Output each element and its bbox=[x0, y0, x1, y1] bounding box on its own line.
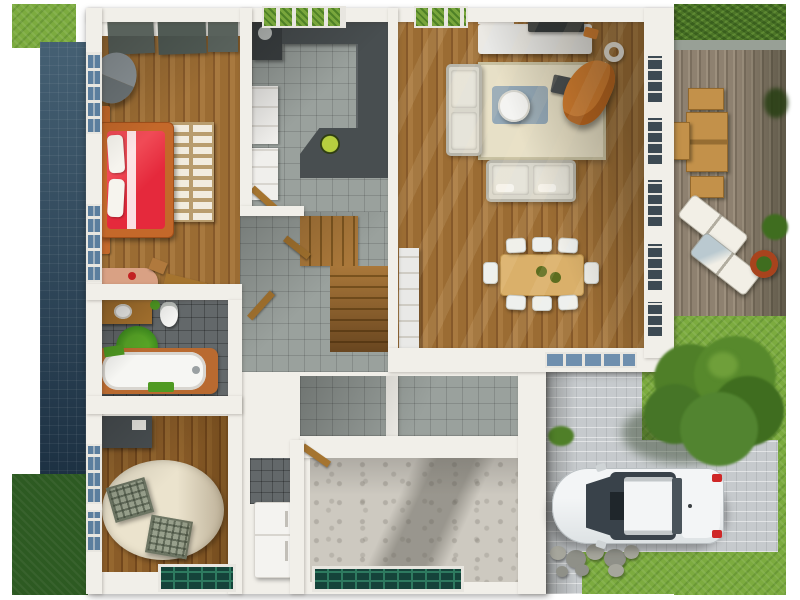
deck-dining-table bbox=[686, 112, 728, 172]
window-pane bbox=[648, 244, 662, 290]
pillow bbox=[107, 134, 126, 173]
stone bbox=[556, 566, 568, 577]
wall-top bbox=[86, 8, 674, 22]
faucet bbox=[192, 366, 200, 374]
basement-window bbox=[312, 566, 464, 592]
bush bbox=[548, 426, 574, 446]
green-bowl bbox=[550, 272, 561, 283]
garden-window bbox=[414, 6, 468, 28]
tree bbox=[628, 336, 786, 486]
dining-chair bbox=[532, 237, 552, 252]
pillow bbox=[107, 179, 125, 218]
deck-chair bbox=[688, 88, 724, 110]
tree-canopy bbox=[680, 392, 758, 466]
stairs-lower-flight bbox=[330, 266, 388, 352]
bush bbox=[762, 214, 788, 240]
car-antenna bbox=[688, 504, 692, 508]
pillow bbox=[496, 184, 514, 192]
plaid-chair bbox=[145, 515, 193, 560]
car-windshield bbox=[586, 476, 612, 536]
double-bed bbox=[98, 122, 174, 238]
dining-chair bbox=[558, 294, 579, 310]
deck-chair bbox=[672, 122, 690, 160]
fridge bbox=[254, 502, 292, 578]
dining-chair bbox=[532, 296, 552, 311]
sideboard bbox=[399, 248, 419, 352]
green-bowl bbox=[320, 134, 340, 154]
wall bbox=[386, 376, 398, 436]
dining-chair bbox=[506, 237, 527, 253]
grass-patch-bottom-left bbox=[12, 474, 88, 595]
green-bowl bbox=[536, 266, 547, 277]
car bbox=[552, 468, 724, 544]
stone bbox=[575, 564, 589, 576]
kitchen-cabinets bbox=[252, 86, 278, 144]
dining-chair bbox=[506, 294, 527, 310]
desk-flower bbox=[128, 272, 136, 280]
wall-bathroom-bottom bbox=[86, 396, 242, 414]
terracotta-planter bbox=[750, 250, 778, 278]
fridge-alcove-tile bbox=[250, 458, 294, 504]
hedge bbox=[674, 4, 786, 42]
loveseat bbox=[486, 160, 576, 202]
car-taillight bbox=[712, 474, 722, 482]
wall-kitchen-bottom bbox=[240, 206, 304, 216]
wall-corridor bbox=[290, 440, 304, 594]
hedge-coping bbox=[674, 40, 786, 50]
wall-hall-left bbox=[228, 300, 242, 594]
car-sunroof bbox=[610, 492, 624, 520]
car-rear-glass bbox=[672, 478, 682, 534]
garden-window bbox=[262, 6, 346, 28]
coffee-table bbox=[498, 90, 530, 122]
dresser-slats bbox=[193, 124, 212, 220]
bath-mat-green bbox=[148, 382, 174, 392]
sink bbox=[114, 304, 132, 319]
stone bbox=[608, 564, 624, 577]
cooktop-knob bbox=[258, 26, 272, 40]
utility-floor bbox=[300, 376, 386, 436]
stone bbox=[550, 546, 566, 560]
wall-bedroom-bottom bbox=[86, 284, 242, 300]
office-window bbox=[86, 510, 102, 552]
wall-garage-right bbox=[518, 372, 546, 594]
bed-sheet-stripe bbox=[127, 131, 136, 229]
office-window bbox=[86, 444, 102, 504]
garage-floor bbox=[310, 458, 518, 582]
car-taillight bbox=[712, 530, 722, 538]
fridge-seam bbox=[255, 534, 291, 536]
dining-chair bbox=[483, 262, 498, 284]
window-pane bbox=[648, 302, 662, 336]
wall-bedroom-kitchen bbox=[240, 8, 252, 208]
car-roof bbox=[624, 477, 674, 535]
dining-window bbox=[545, 352, 637, 368]
wall bbox=[300, 436, 528, 458]
fridge-handle bbox=[285, 541, 288, 561]
pillow bbox=[538, 184, 556, 192]
sofa-cushion bbox=[451, 70, 477, 108]
dining-chair bbox=[558, 237, 579, 253]
bedroom-window bbox=[86, 204, 102, 282]
wall-kitchen-living bbox=[388, 8, 398, 355]
fridge-handle bbox=[285, 511, 288, 527]
slatted-dresser bbox=[168, 122, 214, 222]
tree-highlight bbox=[708, 352, 738, 378]
plant-green bbox=[150, 300, 160, 310]
desk-paper bbox=[132, 420, 146, 430]
floor-plan-render bbox=[0, 0, 800, 600]
sofa-two-seat bbox=[446, 64, 482, 156]
bush bbox=[764, 88, 788, 118]
speaker-ring bbox=[604, 42, 624, 62]
closet-panel bbox=[208, 18, 238, 52]
blue-side-strip bbox=[40, 42, 88, 480]
toilet bbox=[160, 302, 178, 327]
window-pane bbox=[648, 180, 662, 226]
stairs-upper-flight bbox=[300, 216, 358, 266]
utility-floor bbox=[398, 376, 528, 436]
basement-window bbox=[158, 564, 236, 592]
bedroom-window bbox=[86, 52, 102, 134]
window-pane bbox=[648, 56, 662, 102]
window-pane bbox=[648, 118, 662, 164]
dining-chair bbox=[584, 262, 599, 284]
sofa-cushion bbox=[451, 112, 477, 150]
